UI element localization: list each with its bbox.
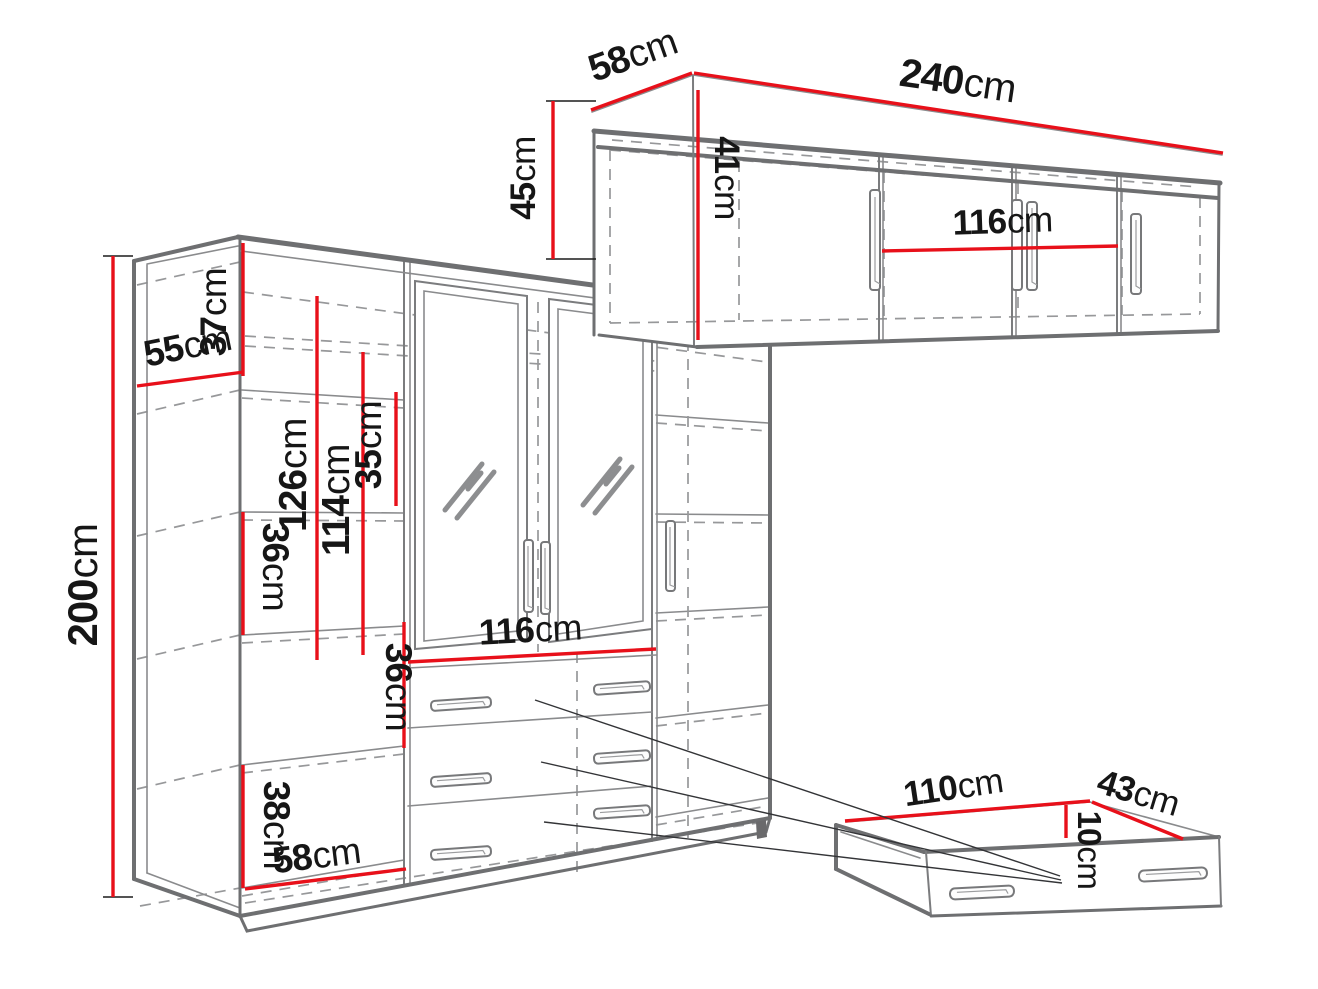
dim-label-height: 45cm [504, 136, 543, 220]
dim-label-center-shelf-gap: 36cm [378, 643, 419, 731]
shelf-line [656, 514, 768, 515]
dim-label-section-width: 116cm [952, 200, 1053, 242]
wardrobe-foot [756, 820, 767, 839]
dim-label-left-shelf-gap: 36cm [255, 523, 296, 611]
dim-label-left-hanging: 126cm [272, 418, 315, 532]
outline-edge [693, 76, 694, 346]
dim-label-width: 240cm [897, 51, 1019, 112]
dim-label-drawer-width: 116cm [478, 606, 583, 652]
mirror-door-left [415, 281, 527, 649]
mirror-glass [415, 281, 527, 649]
outline-edge [1218, 183, 1219, 331]
dim-label-door-height: 41cm [707, 136, 746, 220]
top-cabinet: 58cm 240cm 45cm 41cm 116cm [504, 21, 1223, 347]
dim-label-top-section: 37cm [193, 268, 234, 356]
diagram-page: 200cm 55cm 37cm 126cm 114cm 35cm 36cm 36… [0, 0, 1318, 989]
dim-label-height: 200cm [59, 523, 106, 646]
mirror-glass [549, 299, 652, 642]
dim-label-width: 110cm [901, 761, 1006, 814]
drawer-unit: 110cm 43cm 10cm [836, 761, 1221, 916]
dim-label-upper-shelf-gap: 35cm [348, 401, 389, 489]
mirror-door-right [549, 299, 652, 642]
dim-label-height: 10cm [1071, 811, 1108, 890]
furniture-dimension-diagram: 200cm 55cm 37cm 126cm 114cm 35cm 36cm 36… [0, 0, 1318, 989]
